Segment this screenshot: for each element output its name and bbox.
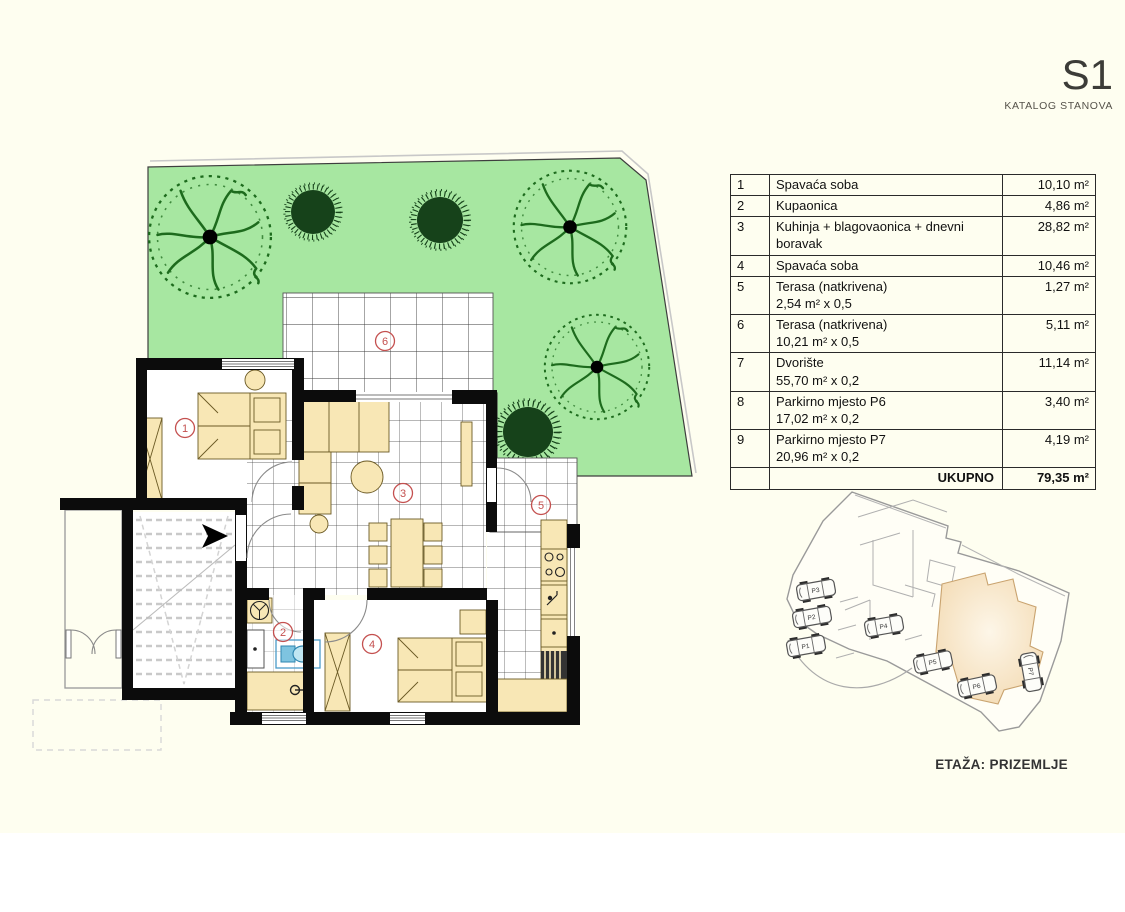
table-row: 5Terasa (natkrivena)2,54 m² x 0,51,27 m²	[731, 276, 1096, 314]
catalog-page: 123456 P1P2P3P4P5P6P7 S1 KATALOG STANOVA…	[0, 0, 1125, 912]
row-number: 4	[731, 255, 770, 276]
table-row: 7Dvorište55,70 m² x 0,211,14 m²	[731, 353, 1096, 391]
table-row: 2Kupaonica4,86 m²	[731, 196, 1096, 217]
stool	[310, 515, 328, 533]
room-calc: 2,54 m² x 0,5	[776, 295, 996, 312]
table-row: 3Kuhinja + blagovaonica + dnevni boravak…	[731, 217, 1096, 255]
row-number: 6	[731, 315, 770, 353]
svg-text:P2: P2	[807, 614, 816, 622]
coffee-table	[351, 461, 383, 493]
room-name: Kuhinja + blagovaonica + dnevni boravak	[770, 217, 1003, 255]
table-row: 4Spavaća soba10,46 m²	[731, 255, 1096, 276]
area-table: 1Spavaća soba10,10 m²2Kupaonica4,86 m²3K…	[730, 174, 1096, 490]
row-number: 9	[731, 430, 770, 468]
sofa	[299, 398, 389, 452]
room-area: 11,14 m²	[1003, 353, 1096, 391]
row-number: 5	[731, 276, 770, 314]
floorplan: 123456	[33, 151, 696, 750]
room-calc: 10,21 m² x 0,5	[776, 333, 996, 350]
side-table	[245, 370, 265, 390]
room-area: 3,40 m²	[1003, 391, 1096, 429]
svg-text:P3: P3	[811, 587, 820, 595]
room-name: Spavaća soba	[770, 255, 1003, 276]
nightstand	[460, 610, 486, 634]
room-name: Dvorište55,70 m² x 0,2	[770, 353, 1003, 391]
car-p1: P1	[785, 632, 826, 659]
row-number: 2	[731, 196, 770, 217]
room-label-6: 6	[376, 332, 395, 351]
room-label-2: 2	[274, 623, 293, 642]
stove-icon	[541, 549, 567, 581]
table-row: 1Spavaća soba10,10 m²	[731, 175, 1096, 196]
sink-icon	[541, 585, 567, 615]
brand-block: S1 KATALOG STANOVA	[1004, 54, 1113, 112]
svg-text:2: 2	[280, 627, 286, 639]
corner-counter	[490, 679, 567, 712]
row-number: 1	[731, 175, 770, 196]
table-row: 6Terasa (natkrivena)10,21 m² x 0,55,11 m…	[731, 315, 1096, 353]
row-number: 7	[731, 353, 770, 391]
table-row: 9Parkirno mjesto P720,96 m² x 0,24,19 m²	[731, 430, 1096, 468]
shower-icon	[247, 672, 305, 710]
svg-text:6: 6	[382, 336, 388, 348]
svg-text:3: 3	[400, 488, 406, 500]
room-area: 1,27 m²	[1003, 276, 1096, 314]
room-area: 4,86 m²	[1003, 196, 1096, 217]
dining-table	[391, 519, 423, 587]
floor-caption: ETAŽA: PRIZEMLJE	[935, 757, 1068, 772]
room-area: 5,11 m²	[1003, 315, 1096, 353]
room-name: Terasa (natkrivena)10,21 m² x 0,5	[770, 315, 1003, 353]
svg-text:P1: P1	[801, 643, 810, 651]
svg-text:P7: P7	[1026, 667, 1034, 676]
page-title: S1	[1004, 54, 1113, 96]
room-name: Terasa (natkrivena)2,54 m² x 0,5	[770, 276, 1003, 314]
total-area: 79,35 m²	[1003, 468, 1096, 489]
room-area: 10,10 m²	[1003, 175, 1096, 196]
room-area: 10,46 m²	[1003, 255, 1096, 276]
row-number: 3	[731, 217, 770, 255]
table-total-row: UKUPNO79,35 m²	[731, 468, 1096, 489]
room-label-1: 1	[176, 419, 195, 438]
row-number: 8	[731, 391, 770, 429]
tv-bench	[461, 422, 472, 486]
room-name: Spavaća soba	[770, 175, 1003, 196]
svg-text:1: 1	[182, 423, 188, 435]
room-label-4: 4	[363, 635, 382, 654]
room-label-5: 5	[532, 496, 551, 515]
svg-text:5: 5	[538, 500, 544, 512]
room-calc: 20,96 m² x 0,2	[776, 448, 996, 465]
total-label: UKUPNO	[770, 468, 1003, 489]
total-empty	[731, 468, 770, 489]
page-subtitle: KATALOG STANOVA	[1004, 100, 1113, 112]
table-row: 8Parkirno mjesto P617,02 m² x 0,23,40 m²	[731, 391, 1096, 429]
svg-text:4: 4	[369, 639, 375, 651]
siteplan: P1P2P3P4P5P6P7	[785, 492, 1069, 731]
room-area: 4,19 m²	[1003, 430, 1096, 468]
room-calc: 55,70 m² x 0,2	[776, 372, 996, 389]
room-name: Parkirno mjesto P720,96 m² x 0,2	[770, 430, 1003, 468]
room-label-3: 3	[394, 484, 413, 503]
svg-text:P4: P4	[879, 623, 888, 631]
room-name: Parkirno mjesto P617,02 m² x 0,2	[770, 391, 1003, 429]
room-calc: 17,02 m² x 0,2	[776, 410, 996, 427]
room-area: 28,82 m²	[1003, 217, 1096, 255]
room-name: Kupaonica	[770, 196, 1003, 217]
